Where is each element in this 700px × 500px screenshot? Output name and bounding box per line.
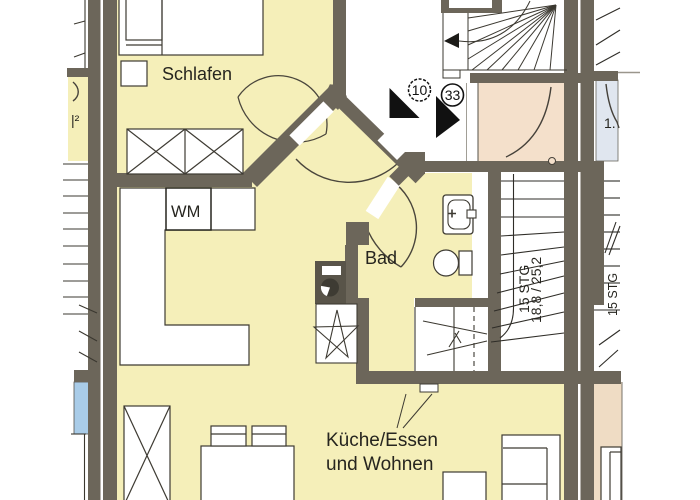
svg-text:15 STG: 15 STG — [606, 273, 620, 316]
svg-text:10: 10 — [412, 82, 428, 98]
svg-text:Schlafen: Schlafen — [162, 64, 232, 84]
svg-text:und Wohnen: und Wohnen — [326, 454, 433, 475]
svg-text:18,8 / 25,2: 18,8 / 25,2 — [528, 257, 544, 323]
svg-text:|²: |² — [71, 112, 80, 128]
svg-text:Küche/Essen: Küche/Essen — [326, 430, 438, 451]
svg-text:33: 33 — [445, 87, 461, 103]
svg-text:1.: 1. — [604, 115, 616, 131]
svg-text:Bad: Bad — [365, 248, 397, 268]
svg-text:WM: WM — [171, 203, 200, 221]
